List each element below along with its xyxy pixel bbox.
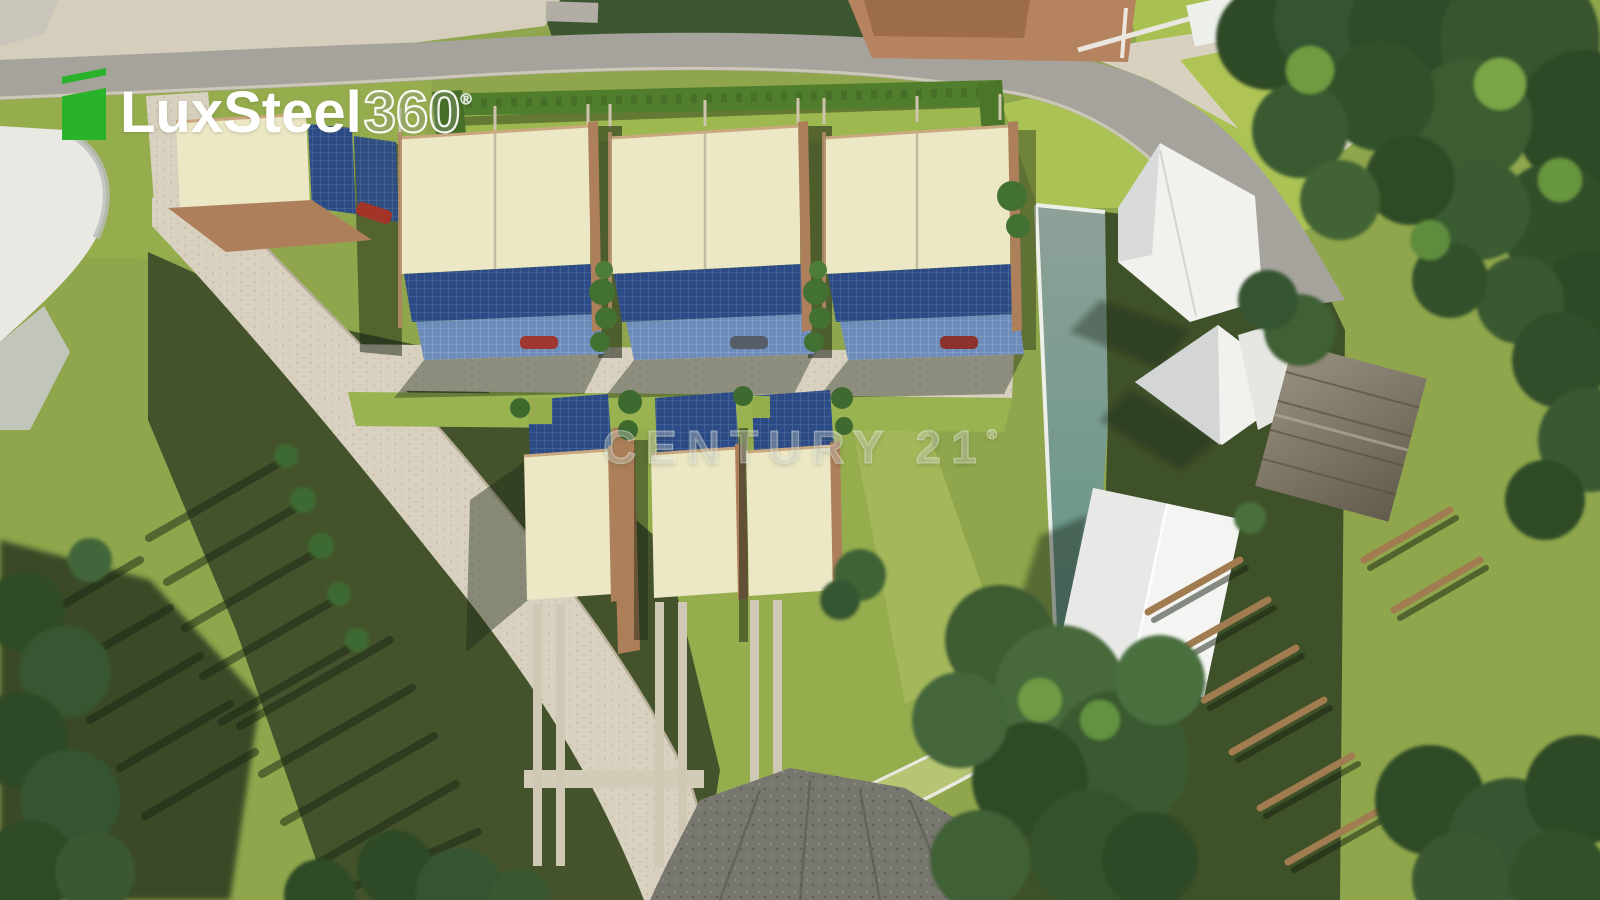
watermark-text: CENTURY 21: [603, 421, 987, 473]
carport-solar-canopy: [416, 314, 604, 360]
aerial-site-render: LuxSteel360® CENTURY 21®: [0, 0, 1600, 900]
carport-solar-canopy: [840, 314, 1024, 360]
watermark: CENTURY 21®: [603, 420, 997, 474]
parked-car-red: [940, 336, 978, 349]
parked-car-red: [520, 336, 558, 349]
solar-roof: [614, 264, 808, 322]
walkway-horizontal: [524, 770, 704, 788]
solar-roof: [404, 264, 598, 322]
watermark-registered-mark: ®: [987, 426, 997, 442]
cream-roof: [524, 450, 613, 600]
fin-wall-left: [398, 132, 402, 328]
solar-notch: [528, 398, 552, 424]
logo-icon-page: [62, 88, 106, 140]
logo-suffix-text: 360: [364, 80, 461, 145]
logo-brand-text: LuxSteel: [120, 80, 362, 145]
parked-car-gray: [730, 336, 768, 349]
solar-roof: [828, 264, 1018, 322]
logo-wordmark: LuxSteel360®: [120, 64, 472, 149]
terracotta-building: [848, 0, 1136, 62]
terracotta-roof-dark: [864, 0, 1030, 38]
carport-solar-canopy: [626, 314, 814, 360]
townhouse-pair: [394, 121, 622, 398]
townhouse-pair: [818, 121, 1036, 398]
carport-shadow: [394, 354, 604, 398]
logo: LuxSteel360®: [62, 64, 472, 149]
logo-registered-mark: ®: [461, 91, 472, 108]
solar-notch: [752, 396, 770, 418]
townhouse-pair: [604, 121, 832, 398]
gray-utility-box: [546, 1, 599, 23]
logo-icon-top-bar: [62, 68, 106, 84]
green-folded-page-icon: [62, 68, 106, 140]
